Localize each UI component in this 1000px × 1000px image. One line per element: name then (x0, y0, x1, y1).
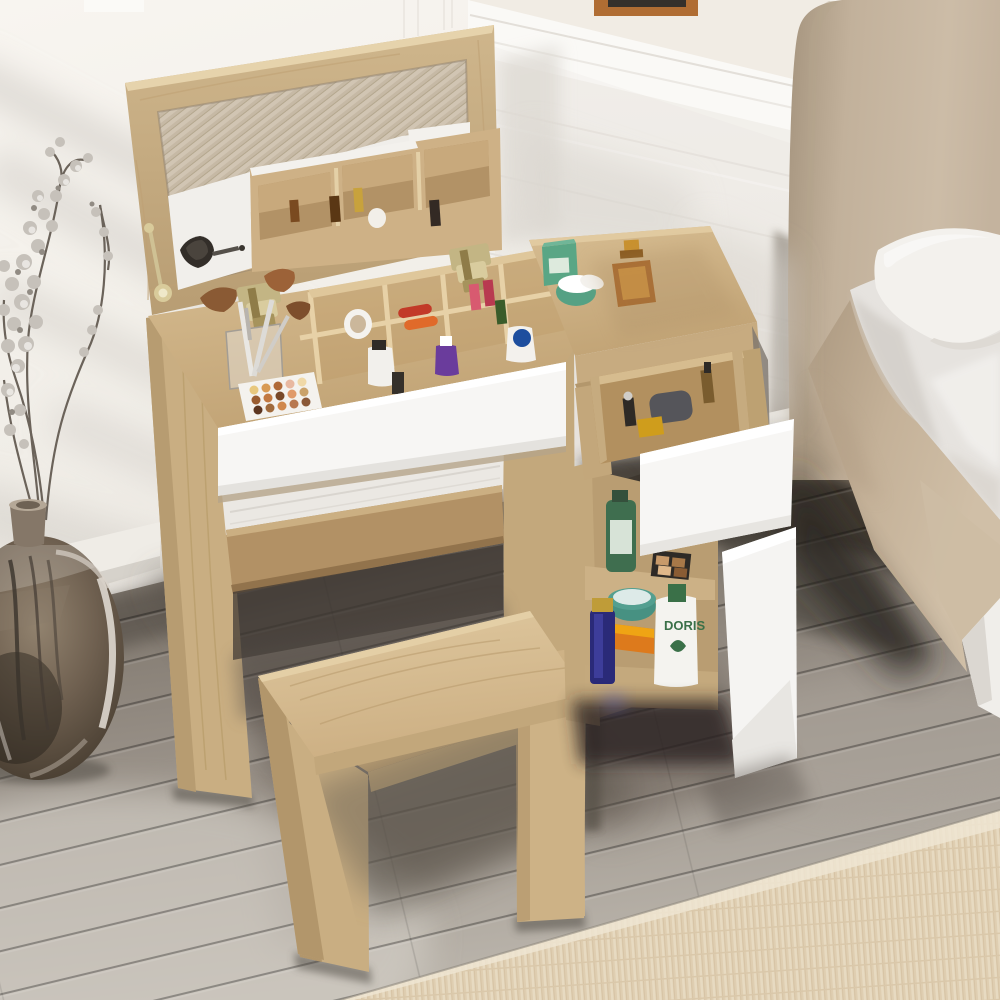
svg-text:DORIS: DORIS (664, 618, 706, 633)
